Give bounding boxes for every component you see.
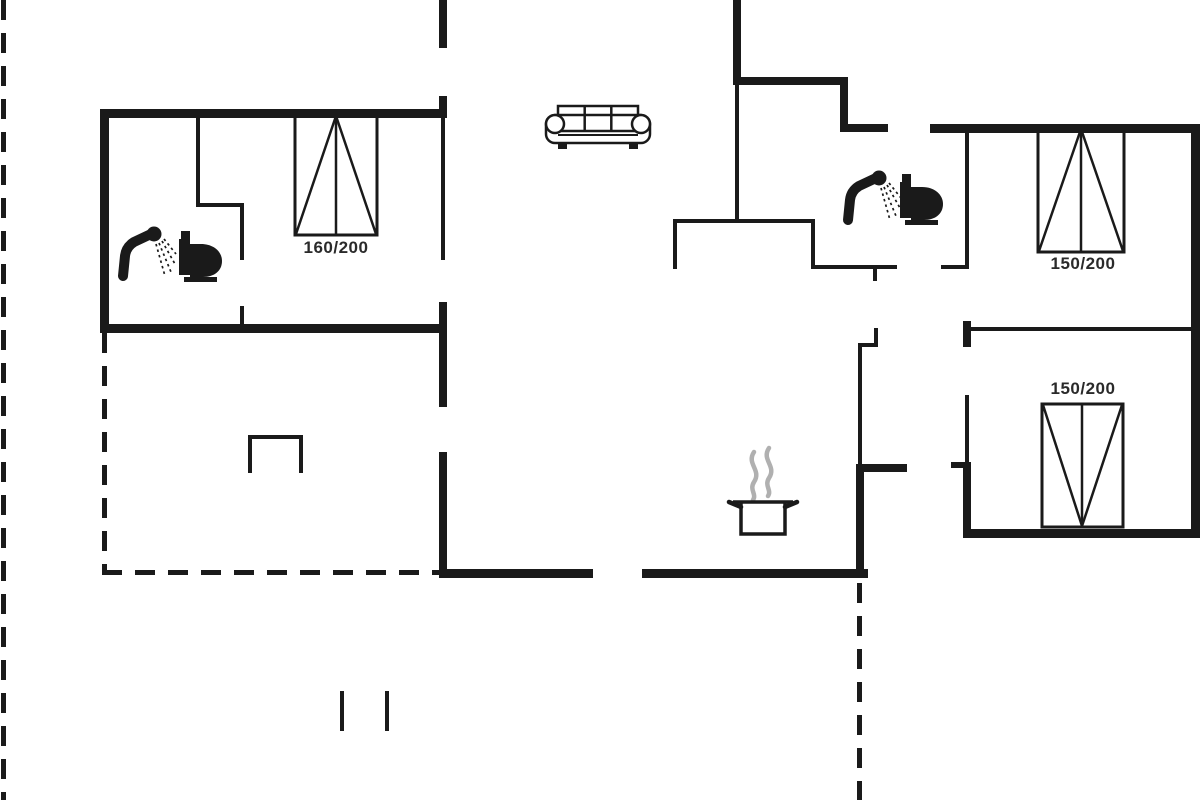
- interior-wall-segment: [240, 306, 244, 326]
- floor-plan: 160/200 150/200 150/200: [0, 0, 1200, 800]
- shower-icon: [113, 222, 177, 286]
- bed-size-label: 150/200: [1021, 254, 1145, 274]
- wall-segment: [733, 0, 741, 85]
- dashed-boundary: [857, 583, 862, 800]
- wall-segment: [439, 452, 447, 578]
- double-bed-icon: [1036, 126, 1126, 254]
- interior-wall-segment: [299, 435, 303, 473]
- double-bed-icon: [1040, 402, 1125, 529]
- interior-wall-segment: [673, 219, 677, 269]
- wall-segment: [963, 321, 971, 347]
- interior-wall-segment: [248, 435, 303, 439]
- bed-size-label: 160/200: [276, 238, 396, 258]
- wall-segment: [951, 462, 965, 468]
- wall-segment: [930, 124, 1200, 133]
- interior-wall-segment: [441, 118, 445, 260]
- interior-wall-segment: [240, 203, 244, 260]
- toilet-icon: [898, 173, 946, 227]
- interior-wall-segment: [196, 113, 200, 207]
- interior-wall-segment: [385, 691, 389, 731]
- toilet-icon: [177, 230, 225, 284]
- interior-wall-segment: [248, 435, 252, 473]
- wall-segment: [963, 529, 1200, 538]
- interior-wall-segment: [811, 265, 897, 269]
- interior-wall-segment: [858, 343, 862, 467]
- cooking-pot-icon: [724, 444, 802, 538]
- wall-segment: [840, 124, 888, 132]
- interior-wall-segment: [965, 395, 969, 467]
- interior-wall-segment: [874, 328, 878, 347]
- wall-segment: [963, 462, 971, 534]
- wall-segment: [1191, 124, 1200, 538]
- dashed-boundary: [102, 333, 107, 574]
- wall-segment: [439, 0, 447, 48]
- interior-wall-segment: [873, 265, 877, 281]
- interior-wall-segment: [965, 128, 969, 268]
- wall-segment: [100, 324, 447, 333]
- wall-segment: [100, 109, 447, 118]
- interior-wall-segment: [811, 219, 815, 269]
- double-bed-icon: [293, 113, 379, 237]
- wall-segment: [100, 109, 109, 333]
- sofa-icon: [542, 104, 654, 152]
- dashed-boundary: [102, 570, 443, 575]
- wall-segment: [642, 569, 868, 578]
- wall-segment: [856, 464, 907, 472]
- interior-wall-segment: [673, 219, 815, 223]
- wall-segment: [439, 569, 593, 578]
- interior-wall-segment: [735, 85, 739, 223]
- wall-segment: [439, 302, 447, 407]
- dashed-boundary: [1, 0, 6, 800]
- wall-segment: [856, 464, 864, 578]
- bed-size-label: 150/200: [1021, 379, 1145, 399]
- shower-icon: [838, 166, 902, 230]
- interior-wall-segment: [340, 691, 344, 731]
- interior-wall-segment: [196, 203, 244, 207]
- wall-segment: [733, 77, 848, 85]
- interior-wall-segment: [965, 327, 1200, 331]
